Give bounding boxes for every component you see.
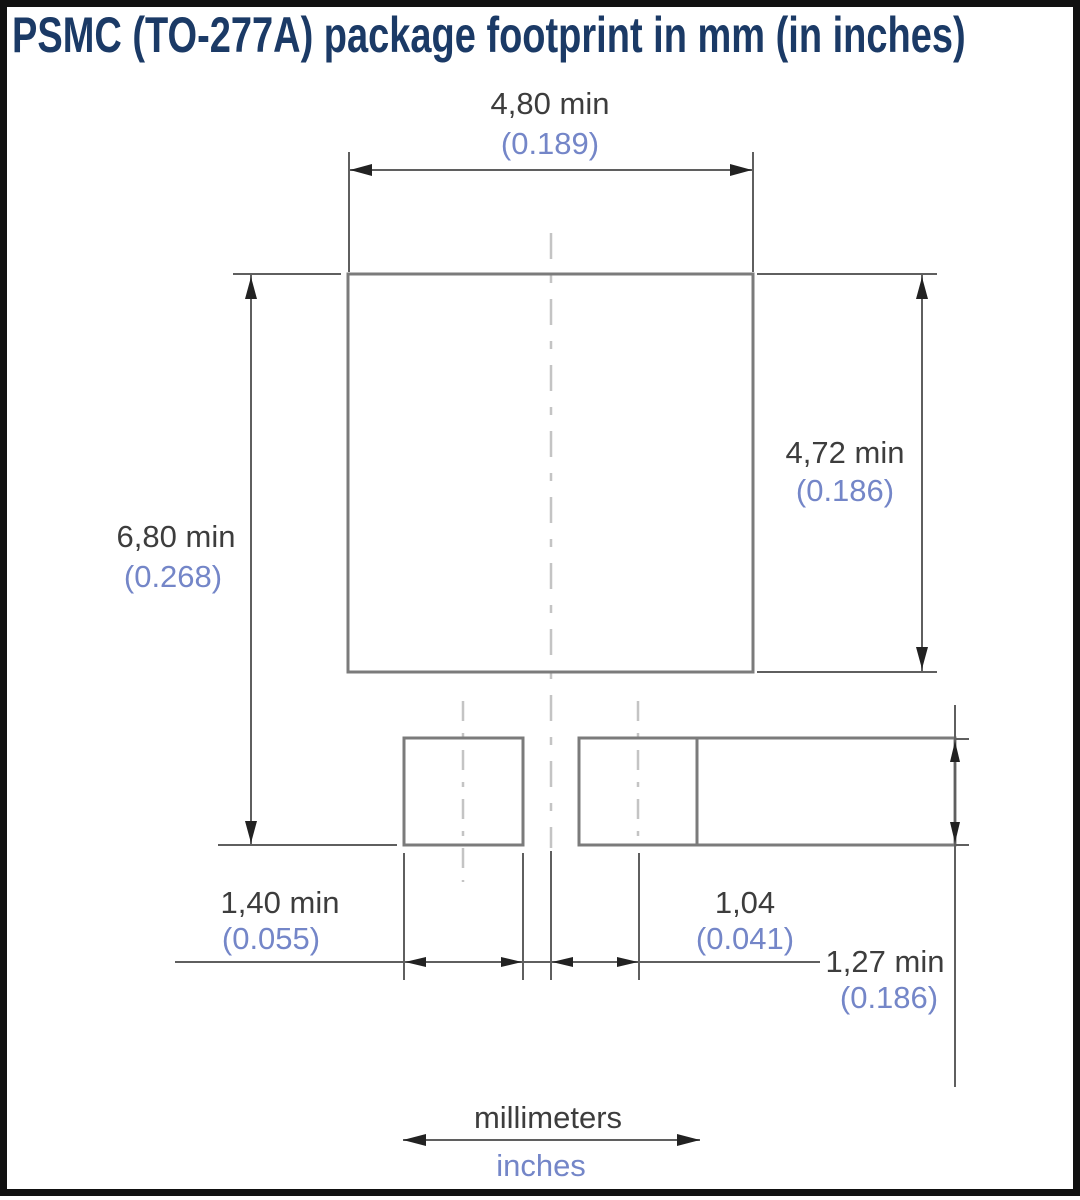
centerlines	[463, 233, 638, 882]
dim-footprint-height-in: (0.268)	[124, 559, 222, 595]
dim-main-pad-height-mm: 4,72 min	[786, 435, 905, 471]
dim-pad-offset-in: (0.041)	[696, 921, 794, 957]
arrow-down-icon	[245, 821, 257, 843]
dim-small-pad-height-in: (0.186)	[840, 980, 938, 1016]
dim-pad-offset-mm: 1,04	[715, 885, 775, 921]
arrow-up-icon	[916, 277, 928, 299]
arrow-right-icon	[677, 1134, 700, 1146]
arrow-down-icon	[916, 647, 928, 669]
arrow-right-icon	[501, 957, 522, 967]
legend-inches-label: inches	[496, 1148, 586, 1184]
arrow-left-icon	[405, 957, 426, 967]
arrow-left-icon	[350, 164, 372, 176]
arrow-up-icon	[950, 741, 960, 762]
arrow-right-icon	[730, 164, 752, 176]
dim-small-pad-width-in: (0.055)	[222, 921, 320, 957]
footprint-drawing	[0, 0, 1080, 1200]
arrow-left-icon	[403, 1134, 426, 1146]
arrow-left-icon	[552, 957, 573, 967]
legend-millimeters-label: millimeters	[474, 1100, 622, 1136]
dim-main-pad-height-in: (0.186)	[796, 473, 894, 509]
dim-main-pad-width-mm: 4,80 min	[491, 86, 610, 122]
dim-small-pad-height-mm: 1,27 min	[826, 944, 945, 980]
dim-small-pad-width-mm: 1,40 min	[221, 885, 340, 921]
arrow-up-icon	[245, 277, 257, 299]
dim-footprint-height-mm: 6,80 min	[117, 519, 236, 555]
pad-outlines	[348, 274, 955, 845]
arrow-down-icon	[950, 822, 960, 843]
arrow-right-icon	[617, 957, 638, 967]
dim-main-pad-width-in: (0.189)	[501, 126, 599, 162]
right-pad-outline	[579, 738, 955, 845]
